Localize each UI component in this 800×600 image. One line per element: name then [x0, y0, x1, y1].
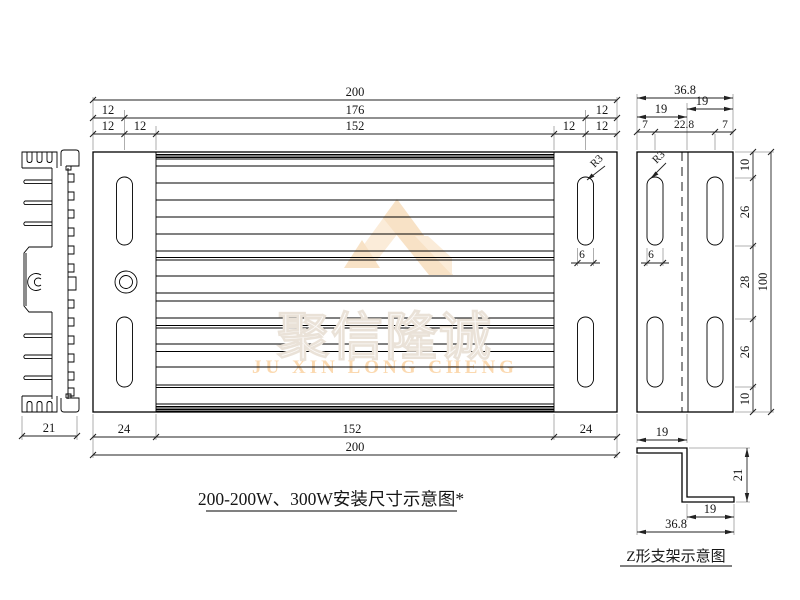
- mounting-slot: [578, 317, 594, 387]
- side-slot-width-dim: 6: [648, 249, 654, 261]
- front-offset-dim: 12: [102, 119, 115, 133]
- front-rib-span-bottom-dim: 152: [343, 422, 362, 436]
- front-end-dim: 24: [118, 422, 131, 436]
- heatsink-profile: [22, 150, 79, 412]
- front-offset-dim: 12: [102, 103, 115, 117]
- side-height-total-dim: 100: [756, 273, 770, 292]
- heatsink-width-dim: 21: [43, 421, 56, 435]
- z-bracket-bottom-flange-dim: 19: [704, 502, 717, 516]
- front-slot-width-dim: 6: [579, 249, 585, 261]
- mounting-slot: [117, 317, 133, 387]
- side-view: 36.8 19 19 7 22.8 7 10 26 28 26 10 100 R…: [634, 83, 774, 443]
- front-rib-span-dim: 152: [346, 119, 365, 133]
- mounting-slot: [707, 317, 723, 387]
- side-edge-right-dim: 7: [722, 119, 728, 131]
- heatsink-section: 21: [19, 150, 80, 440]
- front-total-width-dim: 200: [346, 85, 365, 99]
- watermark-logo: [344, 199, 453, 275]
- main-title-group: 200-200W、300W安装尺寸示意图*: [198, 489, 464, 511]
- z-bracket-title: Z形支架示意图: [626, 547, 725, 565]
- front-offset-dim: 12: [563, 119, 576, 133]
- front-offset-dim: 12: [596, 119, 609, 133]
- z-bracket: 21 19 36.8 Z形支架示意图: [620, 448, 750, 566]
- side-flange-left-dim: 19: [655, 102, 668, 116]
- watermark-company-cn: 聚信隆诚: [276, 309, 493, 367]
- side-v-bottom-dim: 10: [738, 393, 752, 406]
- mounting-slot: [578, 177, 594, 245]
- front-end-dim: 24: [580, 422, 593, 436]
- side-v-upper-dim: 26: [738, 206, 752, 219]
- side-v-mid-dim: 28: [738, 276, 752, 289]
- front-offset-dim: 12: [134, 119, 147, 133]
- side-flange-right-dim: 19: [696, 94, 709, 108]
- side-total-width-dim: 36.8: [674, 83, 696, 97]
- mounting-slot: [647, 317, 663, 387]
- front-total-width-bottom-dim: 200: [346, 440, 365, 454]
- side-v-top-dim: 10: [738, 159, 752, 172]
- side-bracket-width-dim: 19: [656, 425, 669, 439]
- ground-screw-hole: [115, 271, 137, 293]
- main-title: 200-200W、300W安装尺寸示意图*: [198, 489, 464, 509]
- z-bracket-total-width-dim: 36.8: [665, 517, 687, 531]
- front-view: 200 12 176 12 12 12 152 12 12 24 152 24 …: [90, 85, 620, 458]
- ground-screw-hole-inner: [120, 276, 133, 289]
- side-view-body: [637, 152, 733, 412]
- drawing-page: JU XIN LONG CHENG 21: [0, 0, 800, 600]
- z-bracket-profile: [637, 448, 734, 502]
- z-bracket-height-dim: 21: [731, 469, 745, 482]
- side-center-dim: 22.8: [674, 119, 694, 131]
- front-slot-span-dim: 176: [346, 103, 365, 117]
- mounting-slot: [117, 177, 133, 245]
- side-v-lower-dim: 26: [738, 346, 752, 359]
- mounting-slot: [707, 177, 723, 245]
- mounting-slot: [647, 177, 663, 245]
- technical-drawing: JU XIN LONG CHENG 21: [0, 0, 800, 600]
- front-offset-dim: 12: [596, 103, 609, 117]
- side-edge-left-dim: 7: [642, 119, 648, 131]
